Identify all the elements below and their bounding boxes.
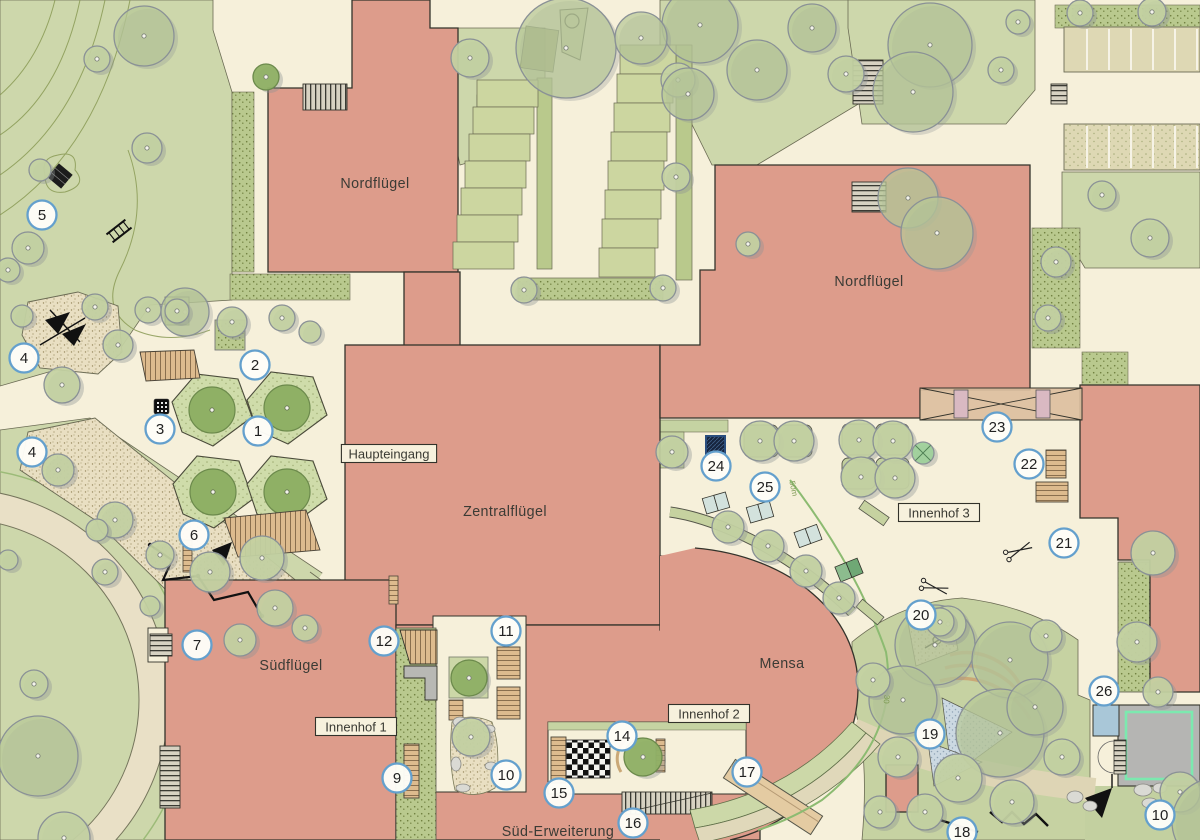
marker-number: 4 bbox=[28, 444, 36, 461]
map-marker-6[interactable]: 6 bbox=[180, 521, 209, 550]
blue-table-2 bbox=[746, 501, 773, 523]
marker-number: 14 bbox=[614, 728, 631, 745]
map-marker-11[interactable]: 11 bbox=[492, 617, 521, 646]
marker-number: 26 bbox=[1096, 683, 1113, 700]
green-strip-innenhof3a bbox=[658, 420, 728, 432]
site-plan: NordflügelNordflügelZentralflügelSüdflüg… bbox=[0, 0, 1200, 840]
stairs-nw bbox=[303, 84, 347, 110]
marker-number: 4 bbox=[20, 350, 28, 367]
stairs-suedwest bbox=[160, 746, 180, 808]
marker-number: 15 bbox=[551, 785, 568, 802]
tree-icon bbox=[712, 511, 748, 546]
tree-icon bbox=[774, 421, 818, 464]
map-marker-2[interactable]: 2 bbox=[241, 351, 270, 380]
map-marker-12[interactable]: 12 bbox=[370, 627, 399, 656]
marker-number: 20 bbox=[913, 607, 930, 624]
map-marker-19[interactable]: 19 bbox=[916, 720, 945, 749]
shrub-strip-bridge bbox=[1082, 352, 1128, 386]
path-annotation: 50m bbox=[787, 480, 799, 497]
boxed-label-text: Innenhof 2 bbox=[678, 707, 739, 722]
tree-icon bbox=[253, 64, 283, 93]
marker-number: 6 bbox=[190, 527, 198, 544]
map-marker-4[interactable]: 4 bbox=[18, 438, 47, 467]
map-marker-21[interactable]: 21 bbox=[1050, 529, 1079, 558]
building-label: Südflügel bbox=[259, 658, 322, 674]
chess-field bbox=[566, 740, 610, 778]
boxed-label: Innenhof 2 bbox=[669, 705, 750, 723]
lounger-11a bbox=[497, 647, 520, 679]
boxed-label-text: Haupteingang bbox=[349, 447, 430, 462]
marker-number: 21 bbox=[1056, 535, 1073, 552]
marker-number: 1 bbox=[254, 423, 262, 440]
pool-square bbox=[1093, 705, 1119, 736]
map-marker-23[interactable]: 23 bbox=[983, 413, 1012, 442]
building-label: Mensa bbox=[760, 656, 805, 672]
map-marker-5[interactable]: 5 bbox=[28, 201, 57, 230]
map-marker-15[interactable]: 15 bbox=[545, 779, 574, 808]
map-marker-20[interactable]: 20 bbox=[907, 601, 936, 630]
map-marker-22[interactable]: 22 bbox=[1015, 450, 1044, 479]
map-marker-10[interactable]: 10 bbox=[492, 761, 521, 790]
marker-number: 24 bbox=[708, 458, 725, 475]
map-marker-1[interactable]: 1 bbox=[244, 417, 273, 446]
boxed-label-text: Innenhof 1 bbox=[325, 720, 386, 735]
marker-number: 25 bbox=[757, 479, 774, 496]
map-marker-3[interactable]: 3 bbox=[146, 415, 175, 444]
map-marker-17[interactable]: 17 bbox=[733, 758, 762, 787]
bench-path bbox=[389, 576, 398, 604]
boxed-label-text: Innenhof 3 bbox=[908, 506, 969, 521]
building-label: Nordflügel bbox=[834, 274, 903, 290]
map-marker-16[interactable]: 16 bbox=[619, 809, 648, 838]
tree-icon bbox=[269, 305, 299, 334]
boxed-label: Haupteingang bbox=[341, 445, 436, 463]
stairs-parking bbox=[1051, 84, 1067, 104]
bench-rot-2 bbox=[856, 599, 884, 625]
parking-lot bbox=[1064, 27, 1200, 170]
marker-number: 10 bbox=[498, 767, 515, 784]
wood-deck-2 bbox=[140, 350, 200, 381]
map-marker-10[interactable]: 10 bbox=[1146, 801, 1175, 830]
marker-number: 2 bbox=[251, 357, 259, 374]
boxed-label: Innenhof 3 bbox=[899, 504, 980, 522]
innenhof2-green-strip bbox=[548, 722, 746, 730]
map-marker-4[interactable]: 4 bbox=[10, 344, 39, 373]
bench-rot-1 bbox=[859, 500, 889, 525]
stairs-7 bbox=[150, 634, 172, 656]
marker-number: 5 bbox=[38, 207, 46, 224]
lawn-below-parking bbox=[1062, 172, 1200, 268]
marker-number: 23 bbox=[989, 419, 1006, 436]
map-marker-24[interactable]: 24 bbox=[702, 452, 731, 481]
map-marker-9[interactable]: 9 bbox=[383, 764, 412, 793]
map-marker-25[interactable]: 25 bbox=[751, 473, 780, 502]
boxed-label: Innenhof 1 bbox=[316, 718, 397, 736]
marker-number: 17 bbox=[739, 764, 756, 781]
lounger-11b bbox=[497, 687, 520, 719]
building-label: Süd-Erweiterung bbox=[502, 824, 615, 840]
hedge-strip-plaza bbox=[230, 274, 350, 300]
marker-number: 10 bbox=[1152, 807, 1169, 824]
marker-number: 11 bbox=[498, 623, 514, 640]
marker-number: 9 bbox=[393, 770, 401, 787]
building-nordfluegel-west bbox=[268, 0, 458, 272]
marker-number: 16 bbox=[625, 815, 642, 832]
marker-number: 22 bbox=[1021, 456, 1038, 473]
site-plan-stage: NordflügelNordflügelZentralflügelSüdflüg… bbox=[0, 0, 1200, 840]
tree-icon bbox=[44, 367, 84, 406]
map-marker-26[interactable]: 26 bbox=[1090, 677, 1119, 706]
path-annotation: 30 bbox=[882, 694, 892, 704]
map-marker-7[interactable]: 7 bbox=[183, 631, 212, 660]
section-marker-icon bbox=[1003, 539, 1034, 562]
building-nordfluegel-ost bbox=[660, 165, 1030, 418]
tree-icon bbox=[299, 321, 325, 346]
marker-number: 12 bbox=[376, 633, 393, 650]
tree-icon bbox=[752, 530, 788, 565]
map-marker-14[interactable]: 14 bbox=[608, 722, 637, 751]
marker-number: 7 bbox=[193, 637, 201, 654]
green-table bbox=[835, 558, 863, 582]
door-hatch bbox=[1114, 740, 1126, 774]
marker-number: 3 bbox=[156, 421, 164, 438]
building-stem bbox=[404, 272, 460, 348]
tree-icon bbox=[875, 458, 919, 501]
bench-15 bbox=[551, 737, 566, 783]
marker-number: 19 bbox=[922, 726, 939, 743]
marker-number: 18 bbox=[954, 824, 971, 840]
building-label: Nordflügel bbox=[340, 176, 409, 192]
building-label: Zentralflügel bbox=[463, 504, 547, 520]
map-marker-18[interactable]: 18 bbox=[948, 818, 977, 840]
section-marker-icon bbox=[919, 578, 949, 597]
tree-icon bbox=[912, 442, 938, 467]
hedge-strip-west bbox=[232, 92, 254, 272]
blue-table-3 bbox=[794, 524, 822, 547]
